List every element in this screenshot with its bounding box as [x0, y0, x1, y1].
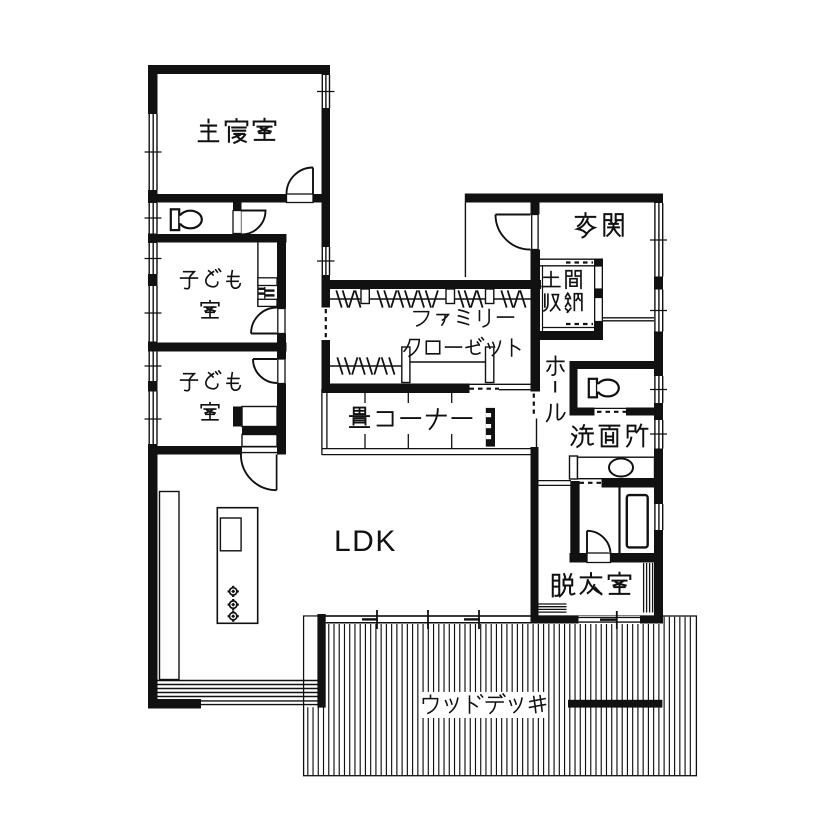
svg-text:LDK: LDK [334, 525, 397, 558]
